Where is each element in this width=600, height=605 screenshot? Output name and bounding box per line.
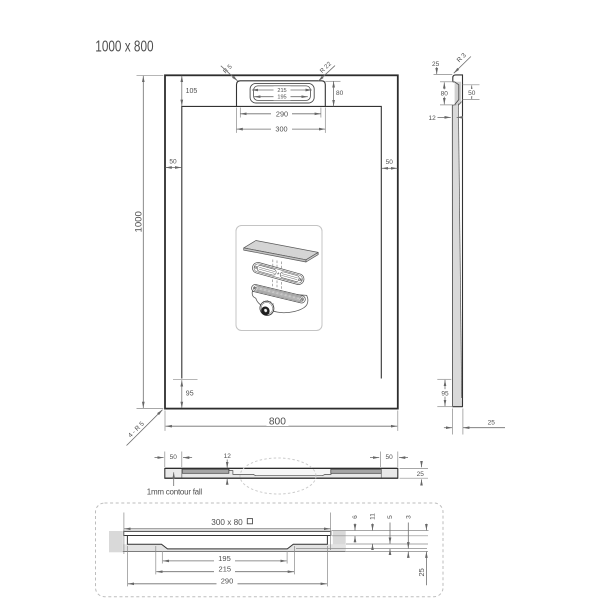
svg-text:215: 215 (219, 565, 232, 574)
svg-text:95: 95 (441, 391, 449, 398)
svg-text:50: 50 (386, 159, 394, 166)
svg-text:195: 195 (218, 554, 231, 563)
svg-text:25: 25 (432, 61, 440, 68)
svg-text:80: 80 (441, 91, 449, 98)
svg-text:5: 5 (387, 515, 394, 519)
svg-text:105: 105 (186, 88, 198, 95)
svg-text:25: 25 (488, 419, 496, 426)
svg-text:1000 x 800: 1000 x 800 (95, 38, 154, 55)
svg-text:50: 50 (385, 454, 393, 461)
svg-text:1000: 1000 (134, 211, 145, 232)
svg-text:80: 80 (336, 90, 344, 97)
svg-text:50: 50 (170, 454, 178, 461)
svg-text:3: 3 (405, 515, 412, 519)
svg-text:1mm contour fall: 1mm contour fall (147, 487, 203, 496)
svg-text:6: 6 (352, 515, 359, 519)
svg-text:95: 95 (186, 391, 194, 398)
svg-text:25: 25 (417, 568, 426, 576)
svg-text:800: 800 (269, 417, 286, 428)
svg-text:12: 12 (224, 453, 232, 460)
svg-text:25: 25 (417, 471, 425, 478)
svg-text:195: 195 (277, 95, 286, 101)
svg-text:215: 215 (277, 88, 286, 94)
svg-text:300 x 80: 300 x 80 (211, 518, 243, 527)
svg-text:50: 50 (169, 158, 177, 165)
svg-text:12: 12 (429, 115, 437, 122)
svg-text:290: 290 (276, 109, 288, 118)
svg-text:11: 11 (370, 513, 377, 520)
svg-text:290: 290 (221, 577, 234, 586)
svg-text:300: 300 (275, 125, 287, 134)
svg-text:50: 50 (468, 90, 476, 97)
